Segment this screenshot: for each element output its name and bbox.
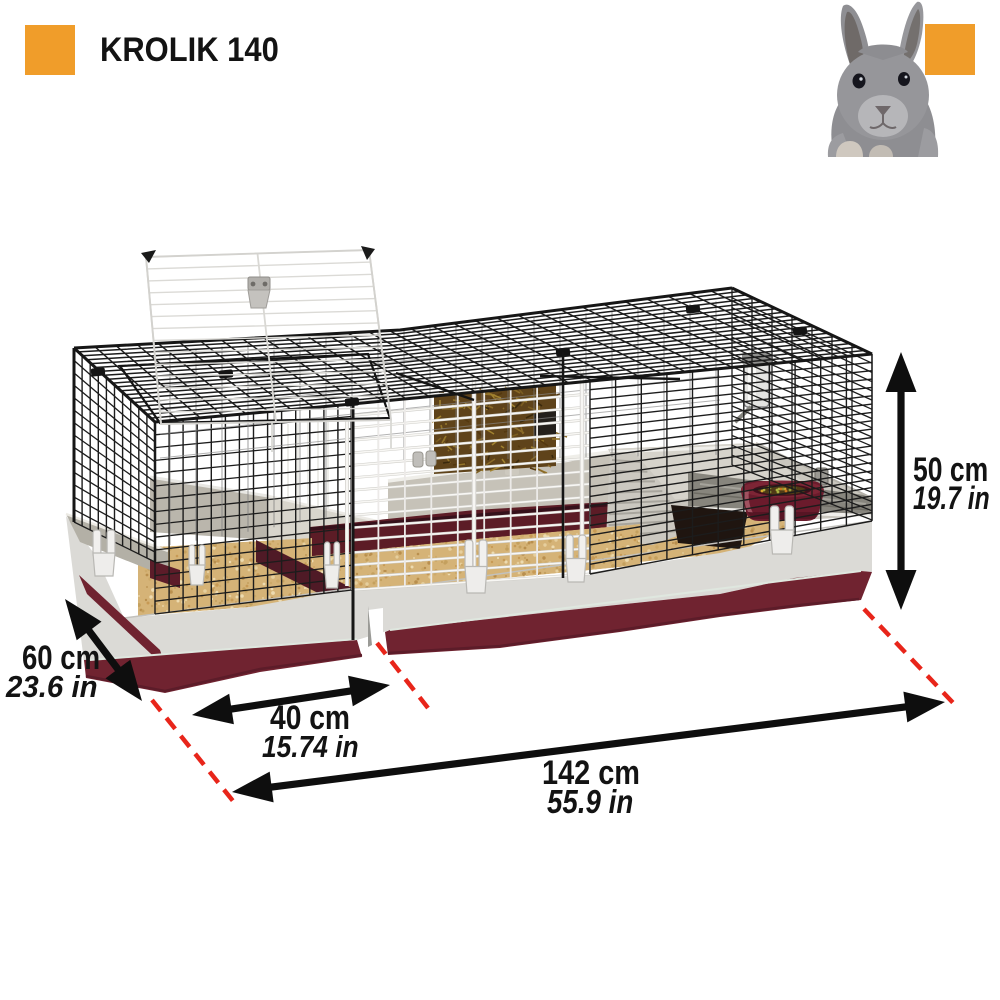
svg-text:15.74 in: 15.74 in [262, 730, 359, 764]
svg-text:23.6 in: 23.6 in [5, 670, 98, 704]
svg-text:19.7 in: 19.7 in [913, 481, 990, 517]
svg-text:55.9 in: 55.9 in [547, 784, 633, 821]
svg-text:KROLIK 140: KROLIK 140 [100, 31, 279, 69]
